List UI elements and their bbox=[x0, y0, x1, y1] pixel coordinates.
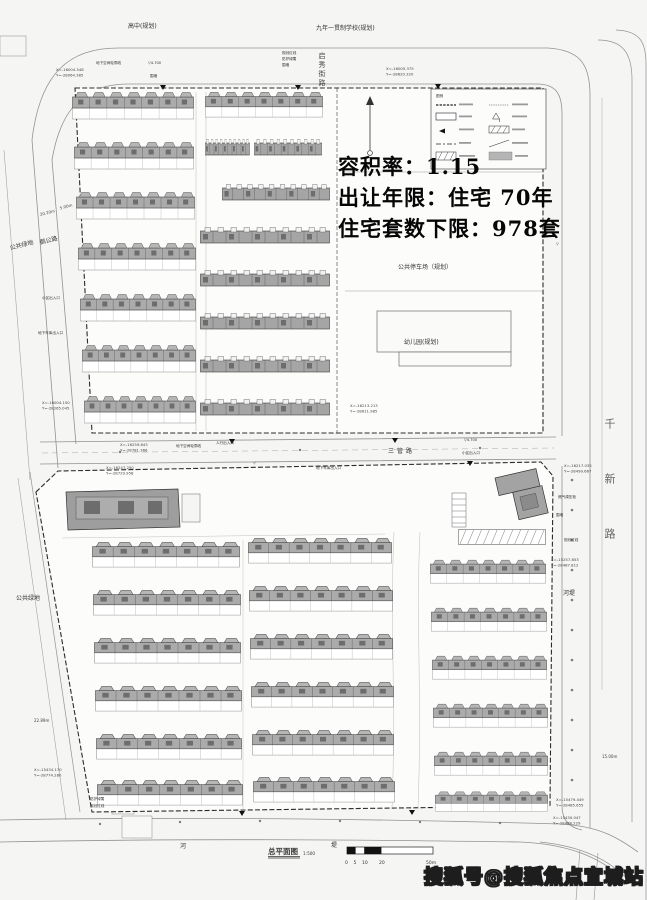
tenure-line: 出让年限：住宅 70年 bbox=[338, 182, 561, 213]
kindergarten-label: 幼儿园(规划) bbox=[404, 338, 439, 346]
svg-text:X=-16004.548: X=-16004.548 bbox=[56, 67, 84, 72]
svg-text:Y=-28620.320: Y=-28620.320 bbox=[386, 72, 414, 77]
svg-text:Y=-28499.667: Y=-28499.667 bbox=[564, 469, 592, 474]
svg-text:Y=-28064.385: Y=-28064.385 bbox=[56, 73, 84, 78]
svg-text:围墙: 围墙 bbox=[556, 512, 564, 517]
svg-text:小区出入口: 小区出入口 bbox=[42, 295, 60, 300]
kindergarten-site bbox=[377, 311, 511, 352]
drawing-title: 总平面图 bbox=[268, 846, 298, 856]
title-block: 总平面图 1:500 0 5 10 20 50m bbox=[268, 846, 436, 866]
parking-hatch-vertical bbox=[452, 493, 466, 527]
svg-text:Y=-28487.812: Y=-28487.812 bbox=[551, 563, 579, 568]
plot-ratio-line: 容积率：1.15 bbox=[338, 151, 561, 182]
svg-text:Y=-28611.985: Y=-28611.985 bbox=[350, 409, 378, 414]
svg-text:20.20m: 20.20m bbox=[39, 208, 55, 217]
svg-text:小区出入口: 小区出入口 bbox=[462, 450, 480, 455]
svg-text:Y=-28265.045: Y=-28265.045 bbox=[42, 406, 70, 411]
svg-text:X=-16004.150: X=-16004.150 bbox=[42, 400, 70, 405]
school-right-label: 九年一贯制学校(规划) bbox=[316, 24, 375, 32]
drawing-scale: 1:500 bbox=[303, 851, 315, 856]
svg-text:防护绿篱: 防护绿篱 bbox=[282, 56, 297, 61]
stats-overlay: 容积率：1.15 出让年限：住宅 70年 住宅套数下限：978套 bbox=[338, 151, 561, 244]
levee-label: 堤 bbox=[331, 841, 337, 849]
svg-text:地下车库出入口: 地下车库出入口 bbox=[38, 330, 64, 335]
svg-text:▽4.700: ▽4.700 bbox=[464, 438, 478, 442]
svg-text:X=-15479.449: X=-15479.449 bbox=[556, 797, 584, 802]
svg-text:22.89m: 22.89m bbox=[34, 718, 49, 723]
svg-text:15.00m: 15.00m bbox=[602, 754, 617, 759]
svg-text:防护绿篱: 防护绿篱 bbox=[90, 796, 105, 801]
svg-text:X=-16213.213: X=-16213.213 bbox=[350, 403, 378, 408]
svg-text:Y=-28774.280: Y=-28774.280 bbox=[34, 773, 62, 778]
svg-text:20: 20 bbox=[379, 860, 385, 866]
svg-text:X=-16259.843: X=-16259.843 bbox=[120, 442, 148, 447]
legend-title: 图例 bbox=[436, 93, 444, 98]
river-label: 河 bbox=[180, 842, 186, 850]
svg-text:X=-16217.035: X=-16217.035 bbox=[564, 463, 592, 468]
unit-count-line: 住宅套数下限：978套 bbox=[338, 213, 561, 244]
svg-text:X=-15257.853: X=-15257.853 bbox=[551, 557, 579, 562]
svg-text:围墙: 围墙 bbox=[150, 73, 158, 78]
green-bottom-label: 公共绿地 bbox=[16, 594, 40, 602]
svg-text:规划红线: 规划红线 bbox=[564, 537, 579, 542]
school-left-label: 高中(规划) bbox=[128, 22, 157, 30]
site-plan-svg: 图例 bbox=[0, 0, 647, 900]
svg-text:5.00m: 5.00m bbox=[59, 202, 73, 210]
sanguan-road-label: 三管路 bbox=[388, 447, 415, 455]
watermark: 搜狐号@搜狐焦点宜城站 bbox=[424, 862, 644, 889]
qianxin-road-label: 千新路 bbox=[601, 418, 617, 583]
parking-hatch-strip bbox=[458, 530, 545, 545]
svg-text:地下车库出入口: 地下车库出入口 bbox=[316, 465, 342, 470]
scale-bar: 0 5 10 20 50m bbox=[345, 847, 436, 866]
svg-text:规划红线: 规划红线 bbox=[282, 50, 297, 55]
svg-text:Y=-28485.655: Y=-28485.655 bbox=[556, 803, 584, 808]
qixiu-road-label: 启秀街路 bbox=[317, 52, 327, 88]
svg-text:5: 5 bbox=[354, 860, 357, 866]
svg-text:围墙: 围墙 bbox=[282, 62, 290, 67]
svg-text:X=-15430.047: X=-15430.047 bbox=[553, 815, 581, 820]
svg-text:▽4.700: ▽4.700 bbox=[148, 61, 162, 65]
riverbank-label: 河堤 bbox=[563, 589, 575, 597]
svg-text:规划红线: 规划红线 bbox=[90, 803, 105, 808]
svg-text:人行出入口: 人行出入口 bbox=[216, 440, 234, 445]
egong-road-label: 鹅公路 bbox=[39, 234, 58, 246]
svg-text:10: 10 bbox=[362, 860, 368, 866]
svg-text:燃气调压柜: 燃气调压柜 bbox=[558, 494, 576, 499]
bottom-parcel bbox=[36, 462, 553, 812]
svg-text:X=-16005.375: X=-16005.375 bbox=[386, 66, 414, 71]
parking-label: 公共停车场（规划） bbox=[398, 263, 452, 271]
svg-text:0: 0 bbox=[345, 860, 348, 866]
green-top-label: 公共绿地 bbox=[9, 238, 34, 252]
svg-text:X=-15434.170: X=-15434.170 bbox=[34, 767, 62, 772]
svg-text:Y=-28781.366: Y=-28781.366 bbox=[120, 448, 148, 453]
svg-text:地下空间轮廓线: 地下空间轮廓线 bbox=[96, 60, 122, 65]
svg-text:地下空间轮廓线: 地下空间轮廓线 bbox=[176, 443, 202, 448]
svg-text:Y=-28488.229: Y=-28488.229 bbox=[553, 821, 581, 826]
svg-text:▽: ▽ bbox=[253, 461, 256, 465]
svg-text:X=-16247.250: X=-16247.250 bbox=[106, 465, 134, 470]
siteplan-screenshot: 图例 bbox=[0, 0, 647, 900]
legend-swatch-building-outline bbox=[436, 113, 456, 120]
svg-text:Y=-28729.958: Y=-28729.958 bbox=[106, 471, 134, 476]
